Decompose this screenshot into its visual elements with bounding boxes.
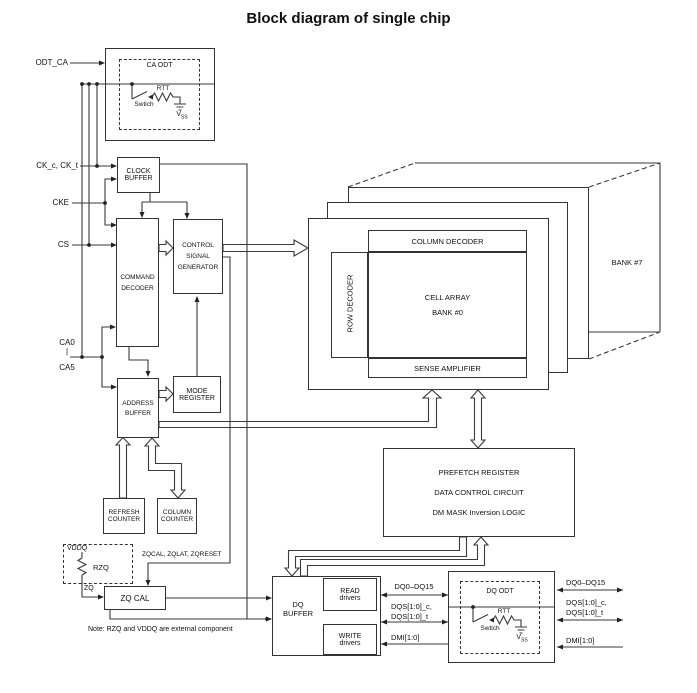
zq-cal-label: ZQ CAL bbox=[121, 594, 150, 603]
vddq-label: VDDQ bbox=[67, 545, 87, 553]
read-drivers-label-2: drivers bbox=[339, 595, 360, 602]
command-decoder-block: COMMAND DECODER bbox=[116, 218, 159, 347]
refresh-counter-label-1: REFRESH bbox=[108, 509, 139, 516]
write-drivers-block: WRITE drivers bbox=[323, 624, 377, 655]
zq-label: ZQ bbox=[84, 585, 94, 593]
address-buffer-label-1: ADDRESS bbox=[122, 400, 153, 407]
control-signal-generator-block: CONTROL SIGNAL GENERATOR bbox=[173, 219, 223, 294]
diagram-title: Block diagram of single chip bbox=[0, 10, 697, 27]
dq-bus-label-outer: DQ0–DQ15 bbox=[566, 578, 605, 587]
ca-odt-switch-label: Swtich bbox=[129, 101, 159, 109]
dq-buffer-label-1: DQ bbox=[272, 600, 324, 609]
dmi-label-inner: DMI[1:0] bbox=[391, 633, 419, 642]
address-buffer-label-2: BUFFER bbox=[125, 410, 151, 417]
dqs-label-outer-2: DQS[1:0]_t bbox=[566, 608, 603, 617]
column-decoder-block: COLUMN DECODER bbox=[368, 230, 527, 252]
dq-buffer-label-2: BUFFER bbox=[272, 609, 324, 618]
clock-buffer-label-1: CLOCK bbox=[126, 168, 150, 175]
refresh-counter-label-2: COUNTER bbox=[108, 516, 140, 523]
mode-register-label-2: REGISTER bbox=[179, 395, 215, 402]
dmi-label-outer: DMI[1:0] bbox=[566, 636, 594, 645]
dqs-label-outer-1: DQS[1:0]_c, bbox=[566, 598, 607, 607]
refresh-counter-block: REFRESH COUNTER bbox=[103, 498, 145, 534]
ca-odt-title: CA ODT bbox=[119, 62, 200, 70]
write-drivers-label-1: WRITE bbox=[339, 633, 362, 640]
zq-command-label: ZQCAL, ZQLAT, ZQRESET bbox=[142, 551, 221, 559]
zq-cal-block: ZQ CAL bbox=[104, 586, 166, 610]
ca-odt-rtt-label: RTT bbox=[152, 85, 174, 93]
csg-label-2: SIGNAL bbox=[186, 253, 210, 260]
read-drivers-label-1: READ bbox=[340, 588, 359, 595]
ca-odt-vss-label: VSS bbox=[172, 111, 192, 120]
note-text: Note: RZQ and VDDQ are external componen… bbox=[88, 626, 233, 634]
pin-ca5: CA5 bbox=[52, 363, 82, 373]
mode-register-block: MODE REGISTER bbox=[173, 376, 221, 413]
clock-buffer-block: CLOCK BUFFER bbox=[117, 157, 160, 193]
cell-array-block: CELL ARRAY BANK #0 bbox=[368, 252, 527, 358]
column-counter-label-1: COLUMN bbox=[163, 509, 191, 516]
pin-ca-range-bar: | bbox=[52, 347, 82, 357]
dq-odt-rtt-label: RTT bbox=[493, 608, 515, 616]
pin-cke: CKE bbox=[29, 198, 69, 208]
prefetch-register-block: PREFETCH REGISTER DATA CONTROL CIRCUIT D… bbox=[383, 448, 575, 537]
pin-ck: CK_c, CK_t bbox=[18, 161, 78, 171]
dqs-label-inner-2: DQS[1:0]_t bbox=[391, 612, 428, 621]
write-drivers-label-2: drivers bbox=[339, 640, 360, 647]
row-decoder-label: ROW DECODER bbox=[345, 251, 354, 357]
command-decoder-label-1: COMMAND bbox=[120, 274, 154, 281]
dqs-label-inner-1: DQS[1:0]_c, bbox=[391, 602, 432, 611]
prefetch-label-3: DM MASK Inversion LOGIC bbox=[433, 508, 526, 517]
column-decoder-label: COLUMN DECODER bbox=[411, 237, 483, 246]
bank7-label: BANK #7 bbox=[596, 258, 658, 267]
mode-register-label-1: MODE bbox=[187, 388, 208, 395]
sense-amplifier-block: SENSE AMPLIFIER bbox=[368, 358, 527, 378]
clock-buffer-label-2: BUFFER bbox=[125, 175, 153, 182]
cell-array-label-2: BANK #0 bbox=[432, 308, 463, 317]
prefetch-label-1: PREFETCH REGISTER bbox=[439, 468, 520, 477]
dq-odt-vss-label: VSS bbox=[512, 634, 532, 643]
address-buffer-block: ADDRESS BUFFER bbox=[117, 378, 159, 438]
dq-bus-label-inner: DQ0–DQ15 bbox=[383, 582, 445, 591]
cell-array-label-1: CELL ARRAY bbox=[425, 293, 470, 302]
prefetch-label-2: DATA CONTROL CIRCUIT bbox=[434, 488, 523, 497]
pin-cs: CS bbox=[29, 240, 69, 250]
column-counter-block: COLUMN COUNTER bbox=[157, 498, 197, 534]
csg-label-3: GENERATOR bbox=[178, 264, 219, 271]
block-diagram-canvas: Block diagram of single chip ODT_CA CK_c… bbox=[0, 0, 697, 693]
column-counter-label-2: COUNTER bbox=[161, 516, 193, 523]
sense-amplifier-label: SENSE AMPLIFIER bbox=[414, 364, 481, 373]
read-drivers-block: READ drivers bbox=[323, 578, 377, 611]
dq-buffer-label: DQ BUFFER bbox=[272, 600, 324, 618]
dq-odt-title: DQ ODT bbox=[460, 588, 540, 596]
pin-odt-ca: ODT_CA bbox=[18, 58, 68, 68]
rzq-label: RZQ bbox=[93, 563, 109, 572]
csg-label-1: CONTROL bbox=[182, 242, 214, 249]
dq-odt-switch-label: Swtich bbox=[475, 625, 505, 633]
command-decoder-label-2: DECODER bbox=[121, 285, 154, 292]
